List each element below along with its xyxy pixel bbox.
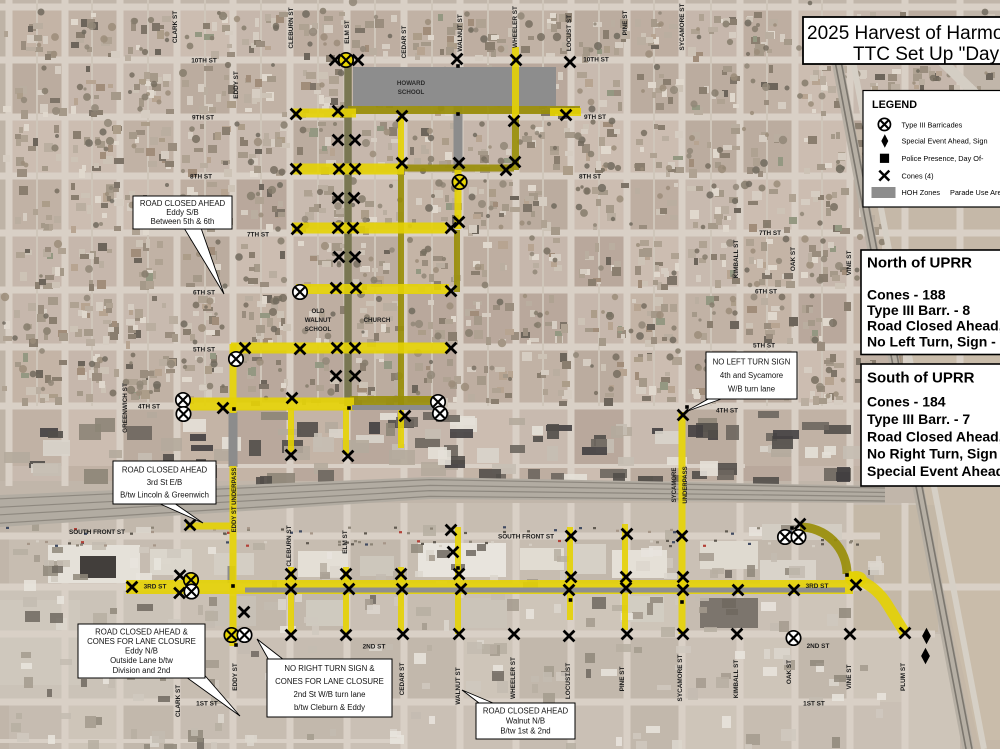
svg-text:Outside Lane b/tw: Outside Lane b/tw [110, 656, 173, 665]
svg-text:SCHOOL: SCHOOL [305, 326, 332, 333]
svg-text:B/tw 1st & 2nd: B/tw 1st & 2nd [500, 727, 550, 736]
svg-text:HOH Zones: HOH Zones [902, 188, 941, 197]
svg-text:2ND ST: 2ND ST [807, 643, 830, 650]
svg-text:KIMBALL ST: KIMBALL ST [733, 660, 740, 699]
svg-text:WHEELER ST: WHEELER ST [510, 657, 517, 699]
svg-text:Cones (4): Cones (4) [902, 172, 934, 181]
svg-text:CLEBURN ST: CLEBURN ST [286, 525, 293, 566]
svg-text:ROAD CLOSED AHEAD: ROAD CLOSED AHEAD [140, 199, 226, 208]
svg-text:Cones - 188: Cones - 188 [867, 287, 946, 303]
svg-text:NO LEFT TURN SIGN: NO LEFT TURN SIGN [713, 357, 791, 366]
svg-text:7TH ST: 7TH ST [247, 232, 269, 239]
svg-text:OLD: OLD [311, 308, 325, 315]
svg-text:Police Presence, Day Of-: Police Presence, Day Of- [902, 154, 984, 163]
svg-text:No Right Turn, Sign - 1: No Right Turn, Sign - 1 [867, 446, 1000, 462]
svg-text:Parade Use Area: Parade Use Area [950, 188, 1000, 197]
svg-text:VINE ST: VINE ST [846, 664, 853, 689]
svg-text:PLUM ST: PLUM ST [900, 663, 907, 691]
svg-text:South of UPRR: South of UPRR [867, 370, 975, 387]
svg-text:ELM ST: ELM ST [342, 530, 349, 554]
svg-text:UNDERPASS: UNDERPASS [683, 466, 689, 503]
svg-text:CHURCH: CHURCH [364, 317, 391, 324]
svg-text:North of UPRR: North of UPRR [867, 255, 972, 272]
svg-text:ROAD CLOSED AHEAD: ROAD CLOSED AHEAD [122, 466, 208, 475]
svg-text:2ND ST: 2ND ST [363, 644, 386, 651]
svg-text:Road Closed Ahead, Sign - 2: Road Closed Ahead, Sign - 2 [867, 428, 1000, 444]
svg-text:9TH ST: 9TH ST [584, 114, 606, 121]
svg-text:4TH ST: 4TH ST [716, 408, 738, 415]
svg-text:SYCAMORE ST: SYCAMORE ST [677, 654, 684, 701]
svg-text:Special Event Ahead, Sign: Special Event Ahead, Sign [902, 137, 988, 146]
svg-text:3rd St E/B: 3rd St E/B [147, 478, 183, 487]
svg-text:OAK ST: OAK ST [790, 247, 797, 271]
svg-text:EDDY ST: EDDY ST [233, 71, 240, 99]
svg-text:Walnut N/B: Walnut N/B [506, 717, 545, 726]
svg-text:CEDAR ST: CEDAR ST [399, 663, 406, 696]
svg-text:No Left Turn, Sign - 1: No Left Turn, Sign - 1 [867, 333, 1000, 349]
svg-text:8TH ST: 8TH ST [579, 174, 601, 181]
svg-text:WHEELER ST: WHEELER ST [512, 6, 519, 48]
svg-text:PINE ST: PINE ST [619, 666, 626, 691]
svg-text:PINE ST: PINE ST [622, 10, 629, 35]
svg-text:ELM ST: ELM ST [344, 20, 351, 44]
svg-text:Cones - 184: Cones - 184 [867, 394, 946, 410]
svg-text:4TH ST: 4TH ST [138, 404, 160, 411]
svg-text:CONES FOR LANE CLOSURE: CONES FOR LANE CLOSURE [275, 677, 384, 686]
svg-text:VINE ST: VINE ST [846, 250, 853, 275]
svg-text:GREENWICH ST: GREENWICH ST [122, 383, 129, 433]
svg-text:b/tw Cleburn & Eddy: b/tw Cleburn & Eddy [294, 703, 365, 712]
svg-text:CEDAR ST: CEDAR ST [401, 26, 408, 59]
svg-text:WALNUT: WALNUT [305, 317, 332, 324]
svg-text:6TH ST: 6TH ST [755, 289, 777, 296]
svg-text:5TH ST: 5TH ST [753, 343, 775, 350]
svg-text:3RD ST: 3RD ST [144, 584, 167, 591]
svg-text:CLARK ST: CLARK ST [172, 11, 179, 43]
svg-text:W/B turn lane: W/B turn lane [728, 385, 775, 394]
svg-text:SCHOOL: SCHOOL [398, 89, 425, 96]
svg-text:Road Closed Ahead, Sign - 4: Road Closed Ahead, Sign - 4 [867, 318, 1000, 334]
svg-text:10TH ST: 10TH ST [191, 58, 217, 65]
svg-text:B/tw Lincoln & Greenwich: B/tw Lincoln & Greenwich [120, 490, 209, 499]
svg-text:Eddy N/B: Eddy N/B [125, 647, 158, 656]
svg-text:7TH ST: 7TH ST [759, 230, 781, 237]
svg-text:SOUTH FRONT ST: SOUTH FRONT ST [69, 529, 125, 536]
svg-text:OAK ST: OAK ST [786, 660, 793, 684]
svg-text:2nd St W/B turn lane: 2nd St W/B turn lane [294, 690, 366, 699]
svg-text:NO RIGHT TURN SIGN &: NO RIGHT TURN SIGN & [284, 664, 375, 673]
svg-text:LOCUST ST: LOCUST ST [566, 15, 573, 51]
svg-text:1ST ST: 1ST ST [196, 701, 218, 708]
svg-text:4th and Sycamore: 4th and Sycamore [720, 371, 783, 380]
svg-text:SYCAMORE ST: SYCAMORE ST [679, 3, 686, 50]
svg-text:KIMBALL ST: KIMBALL ST [733, 240, 740, 279]
svg-text:Division and 2nd: Division and 2nd [113, 666, 171, 675]
svg-text:ROAD CLOSED AHEAD &: ROAD CLOSED AHEAD & [95, 627, 189, 636]
svg-text:6TH ST: 6TH ST [193, 290, 215, 297]
svg-text:8TH ST: 8TH ST [190, 174, 212, 181]
svg-text:2025 Harvest of Harmony Parade: 2025 Harvest of Harmony Parade [807, 23, 1000, 44]
svg-text:Eddy S/B: Eddy S/B [166, 208, 199, 217]
svg-text:WALNUT ST: WALNUT ST [457, 14, 464, 51]
svg-text:HOWARD: HOWARD [397, 80, 426, 87]
svg-text:EDDY ST UNDERPASS: EDDY ST UNDERPASS [232, 468, 238, 533]
svg-text:LOCUST ST: LOCUST ST [565, 663, 572, 699]
svg-text:CLEBURN ST: CLEBURN ST [288, 7, 295, 48]
svg-text:SYCAMORE: SYCAMORE [672, 468, 678, 503]
svg-text:EDDY ST: EDDY ST [232, 663, 239, 691]
svg-text:Special Event Ahead, Sign - 2: Special Event Ahead, Sign - 2 [867, 463, 1000, 479]
svg-text:WALNUT ST: WALNUT ST [455, 667, 462, 704]
svg-text:CONES FOR LANE CLOSURE: CONES FOR LANE CLOSURE [87, 637, 196, 646]
svg-text:Type III Barr. - 7: Type III Barr. - 7 [867, 411, 970, 427]
svg-text:1ST ST: 1ST ST [803, 701, 825, 708]
svg-text:3RD ST: 3RD ST [806, 583, 829, 590]
svg-text:TTC Set Up "Day Of": TTC Set Up "Day Of" [853, 44, 1000, 65]
svg-text:5TH ST: 5TH ST [193, 347, 215, 354]
svg-text:SOUTH FRONT ST: SOUTH FRONT ST [498, 534, 554, 541]
svg-text:LEGEND: LEGEND [872, 99, 917, 111]
svg-text:10TH ST: 10TH ST [583, 57, 609, 64]
svg-text:CLARK ST: CLARK ST [175, 685, 182, 717]
svg-text:Type III Barricades: Type III Barricades [902, 121, 963, 130]
svg-text:ROAD CLOSED AHEAD: ROAD CLOSED AHEAD [483, 707, 569, 716]
svg-text:Type III Barr. - 8: Type III Barr. - 8 [867, 302, 970, 318]
svg-text:9TH ST: 9TH ST [192, 115, 214, 122]
svg-text:Between 5th & 6th: Between 5th & 6th [151, 217, 215, 226]
